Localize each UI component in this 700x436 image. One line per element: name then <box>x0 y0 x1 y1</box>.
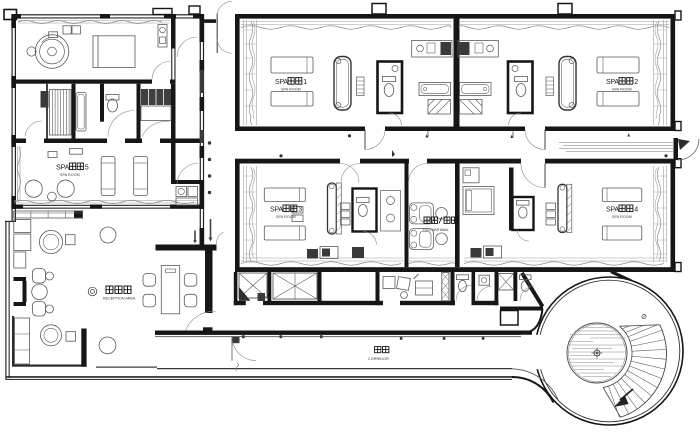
svg-text:SPA: SPA <box>275 79 288 86</box>
svg-text:SPA: SPA <box>606 79 619 86</box>
svg-text:FOOT BATH/NAIL: FOOT BATH/NAIL <box>423 228 449 232</box>
svg-text:SPA ROOM: SPA ROOM <box>276 215 296 219</box>
svg-text:3: 3 <box>298 207 302 214</box>
svg-text:SPA: SPA <box>270 207 283 214</box>
svg-text:5: 5 <box>85 163 89 172</box>
svg-text:2: 2 <box>634 79 638 86</box>
svg-text:1: 1 <box>303 79 307 86</box>
svg-text:SPA ROOM: SPA ROOM <box>281 88 301 92</box>
svg-text:SPA ROOM: SPA ROOM <box>612 88 632 92</box>
svg-text:SPA: SPA <box>56 163 70 172</box>
svg-text:4: 4 <box>634 207 638 214</box>
svg-text:CORRIDOR: CORRIDOR <box>368 357 389 361</box>
svg-text:RECEPTION AREA: RECEPTION AREA <box>103 297 136 301</box>
svg-text:SPA ROOM: SPA ROOM <box>612 215 632 219</box>
svg-text:SPA: SPA <box>606 207 619 214</box>
svg-text:SPA ROOM: SPA ROOM <box>60 173 80 177</box>
